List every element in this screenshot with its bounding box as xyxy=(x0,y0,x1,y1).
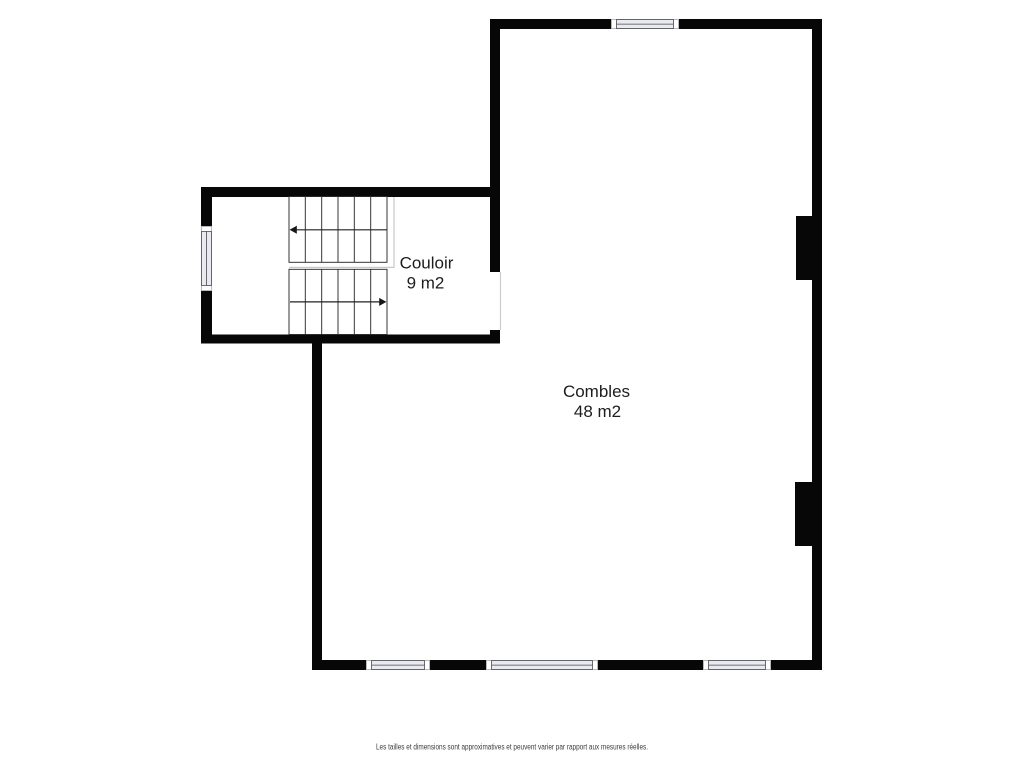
svg-text:48 m2: 48 m2 xyxy=(574,402,621,421)
svg-text:9 m2: 9 m2 xyxy=(407,273,445,292)
svg-text:Combles: Combles xyxy=(563,382,630,401)
svg-text:Les tailles et dimensions sont: Les tailles et dimensions sont approxima… xyxy=(376,743,648,752)
svg-text:Couloir: Couloir xyxy=(400,254,454,273)
